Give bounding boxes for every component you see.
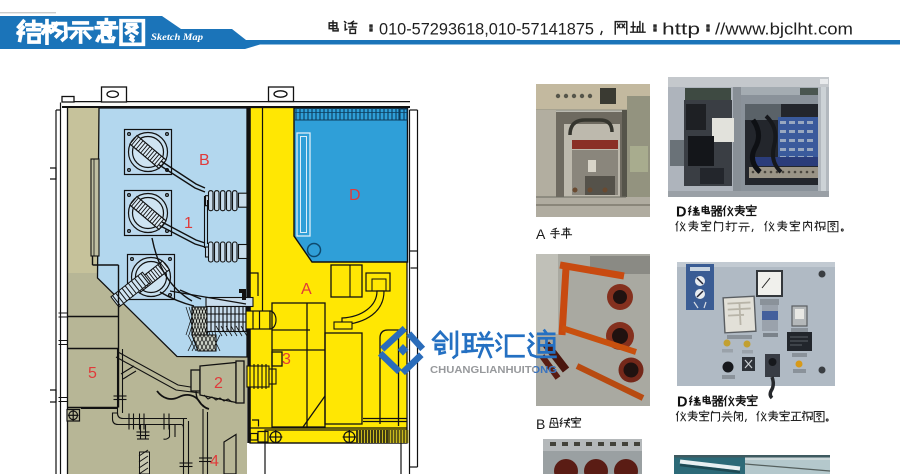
svg-text:5: 5 — [88, 365, 97, 382]
svg-text:2: 2 — [214, 375, 223, 392]
svg-text:D: D — [677, 395, 687, 411]
svg-text:D: D — [676, 205, 686, 221]
svg-text:1: 1 — [184, 215, 193, 232]
svg-text:http: http — [662, 20, 700, 39]
svg-text:010-57293618,010-57141875: 010-57293618,010-57141875 — [379, 20, 594, 39]
svg-text:3: 3 — [282, 351, 291, 368]
svg-text:4: 4 — [210, 453, 219, 470]
svg-text:A: A — [536, 226, 546, 242]
svg-text:B: B — [199, 152, 210, 169]
svg-text:D: D — [349, 187, 361, 204]
svg-text:A: A — [301, 281, 312, 298]
svg-text:B: B — [536, 416, 545, 432]
svg-text:Sketch Map: Sketch Map — [151, 33, 203, 43]
svg-text://www.bjclht.com: //www.bjclht.com — [715, 20, 853, 39]
